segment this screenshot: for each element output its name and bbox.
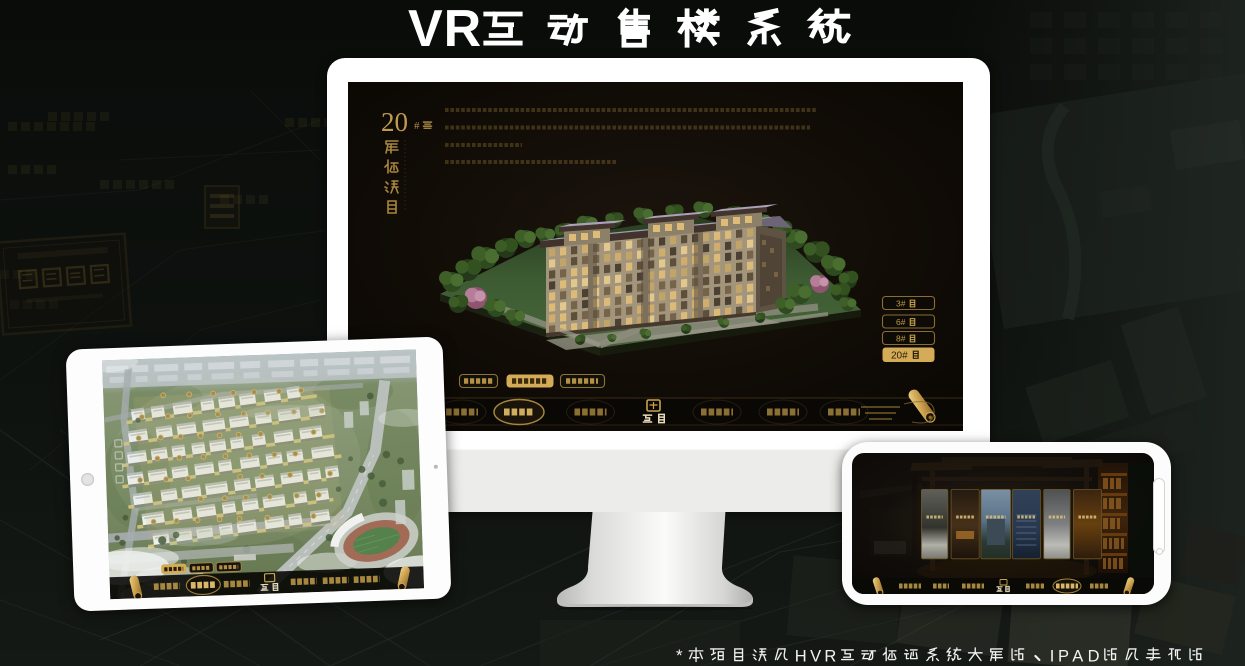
svg-text:20: 20 xyxy=(381,107,408,137)
svg-text:VR: VR xyxy=(408,0,482,58)
svg-text:*: * xyxy=(676,646,683,665)
svg-text:A: A xyxy=(1072,648,1083,666)
svg-text:8#: 8# xyxy=(896,334,906,344)
svg-text:3#: 3# xyxy=(896,299,906,309)
svg-text:I: I xyxy=(1050,648,1055,666)
svg-text:H: H xyxy=(795,648,807,666)
svg-text:#: # xyxy=(414,120,420,132)
svg-text:6#: 6# xyxy=(896,317,906,327)
svg-text:D: D xyxy=(1088,648,1100,666)
svg-text:P: P xyxy=(1058,648,1069,666)
svg-text:V: V xyxy=(810,648,821,666)
svg-text:R: R xyxy=(824,648,836,666)
svg-text:20#: 20# xyxy=(891,351,908,362)
